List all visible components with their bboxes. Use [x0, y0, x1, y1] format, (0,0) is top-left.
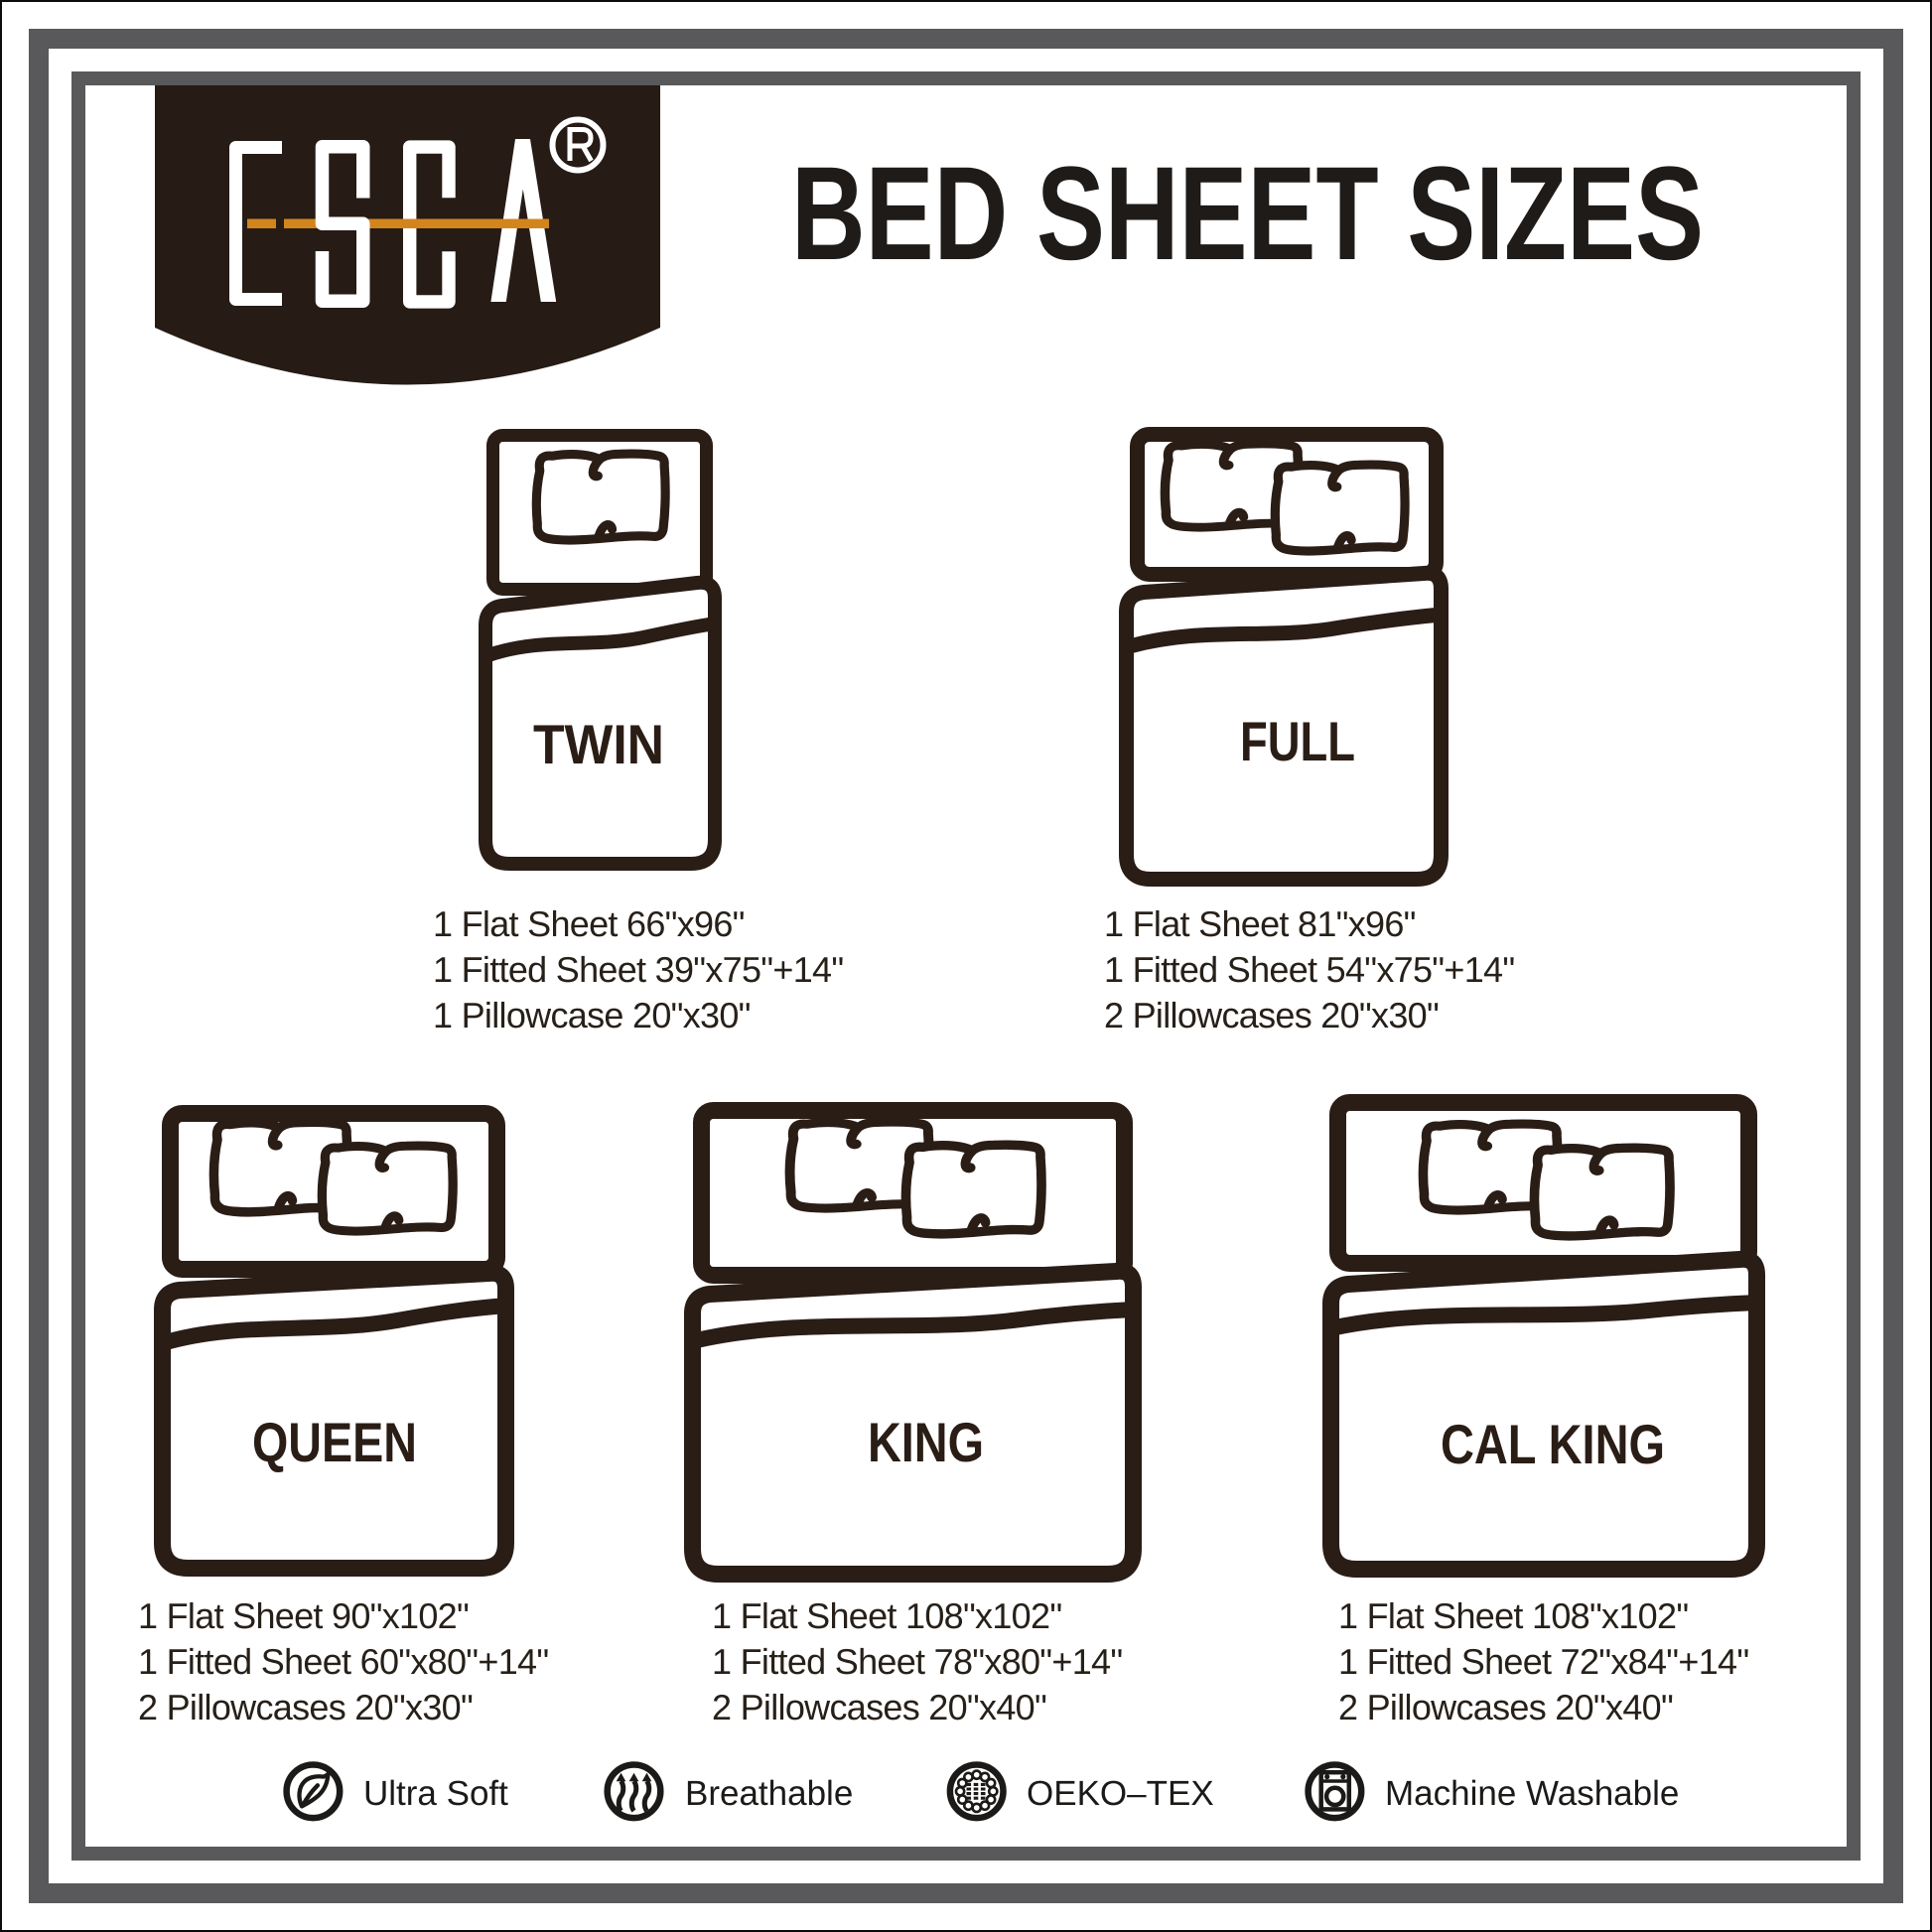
svg-text:1 Fitted Sheet 60"x80"+14": 1 Fitted Sheet 60"x80"+14": [138, 1641, 548, 1682]
svg-text:1 Fitted Sheet 78"x80"+14": 1 Fitted Sheet 78"x80"+14": [712, 1641, 1122, 1682]
svg-text:1 Flat Sheet 90"x102": 1 Flat Sheet 90"x102": [138, 1595, 469, 1636]
svg-text:2 Pillowcases 20"x30": 2 Pillowcases 20"x30": [1104, 995, 1439, 1035]
svg-text:FULL: FULL: [1240, 710, 1355, 772]
svg-text:1 Flat Sheet 108"x102": 1 Flat Sheet 108"x102": [712, 1595, 1061, 1636]
svg-text:1 Fitted Sheet 54"x75"+14": 1 Fitted Sheet 54"x75"+14": [1104, 949, 1514, 990]
svg-text:1 Fitted Sheet 72"x84"+14": 1 Fitted Sheet 72"x84"+14": [1338, 1641, 1748, 1682]
svg-text:TWIN: TWIN: [533, 713, 664, 775]
svg-text:1 Flat Sheet 108"x102": 1 Flat Sheet 108"x102": [1338, 1595, 1688, 1636]
svg-text:Breathable: Breathable: [685, 1774, 853, 1813]
svg-text:QUEEN: QUEEN: [252, 1411, 417, 1473]
svg-text:1 Fitted Sheet 39"x75"+14": 1 Fitted Sheet 39"x75"+14": [433, 949, 843, 990]
svg-text:CAL KING: CAL KING: [1441, 1413, 1665, 1475]
svg-text:1 Pillowcase 20"x30": 1 Pillowcase 20"x30": [433, 995, 751, 1035]
svg-text:OEKO–TEX: OEKO–TEX: [1027, 1774, 1214, 1813]
svg-text:2 Pillowcases 20"x30": 2 Pillowcases 20"x30": [138, 1687, 473, 1727]
svg-text:Ultra Soft: Ultra Soft: [363, 1774, 508, 1813]
svg-text:1 Flat Sheet 66"x96": 1 Flat Sheet 66"x96": [433, 903, 745, 944]
svg-text:2 Pillowcases 20"x40": 2 Pillowcases 20"x40": [712, 1687, 1046, 1727]
svg-text:KING: KING: [868, 1411, 984, 1473]
svg-text:BED SHEET SIZES: BED SHEET SIZES: [791, 140, 1704, 288]
svg-text:Machine Washable: Machine Washable: [1385, 1774, 1679, 1813]
svg-text:1 Flat Sheet 81"x96": 1 Flat Sheet 81"x96": [1104, 903, 1416, 944]
svg-text:2 Pillowcases 20"x40": 2 Pillowcases 20"x40": [1338, 1687, 1673, 1727]
